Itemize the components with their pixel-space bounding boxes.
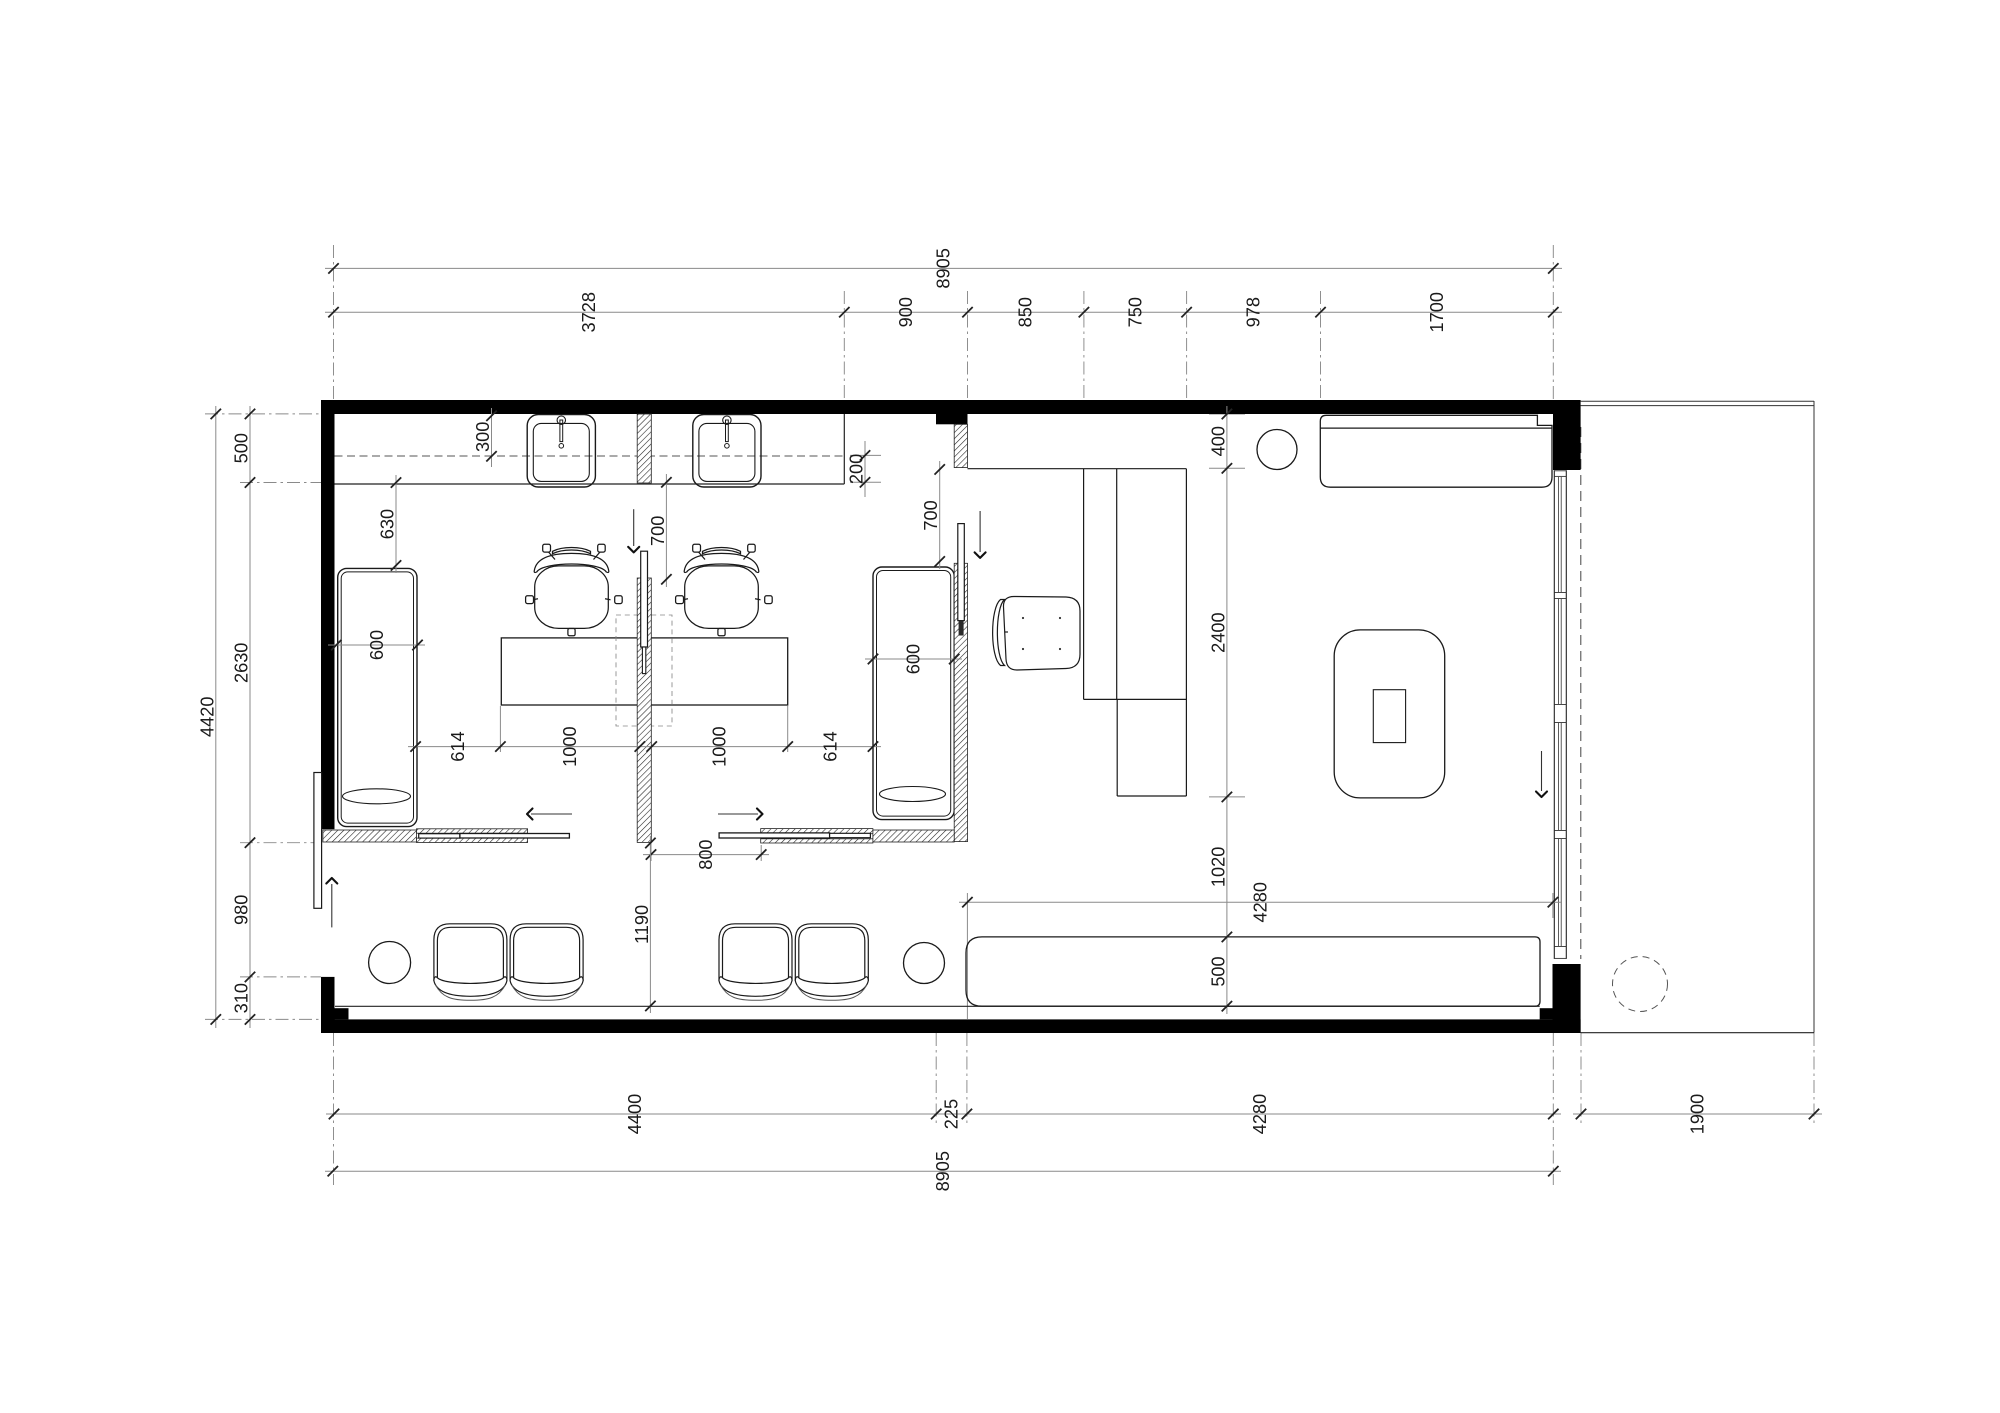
svg-text:700: 700: [648, 516, 668, 546]
svg-text:4280: 4280: [1250, 1094, 1270, 1134]
svg-text:1020: 1020: [1208, 847, 1228, 887]
svg-text:1900: 1900: [1688, 1094, 1708, 1134]
svg-text:310: 310: [232, 983, 252, 1013]
svg-text:978: 978: [1244, 297, 1264, 327]
svg-text:2400: 2400: [1208, 612, 1228, 652]
svg-text:500: 500: [232, 433, 252, 463]
svg-text:4420: 4420: [197, 696, 217, 736]
svg-text:600: 600: [367, 630, 387, 660]
svg-text:700: 700: [921, 500, 941, 530]
svg-text:1000: 1000: [710, 726, 730, 766]
svg-text:225: 225: [942, 1099, 962, 1129]
svg-text:850: 850: [1016, 297, 1036, 327]
svg-text:400: 400: [1208, 426, 1228, 456]
svg-text:500: 500: [1208, 956, 1228, 986]
svg-text:980: 980: [232, 895, 252, 925]
svg-text:614: 614: [820, 731, 840, 761]
svg-text:750: 750: [1125, 297, 1145, 327]
svg-text:630: 630: [378, 509, 398, 539]
svg-text:8905: 8905: [933, 1151, 953, 1191]
svg-text:3728: 3728: [579, 292, 599, 332]
svg-text:600: 600: [904, 644, 924, 674]
svg-text:1700: 1700: [1427, 292, 1447, 332]
svg-text:614: 614: [448, 731, 468, 761]
svg-text:2630: 2630: [232, 643, 252, 683]
svg-text:900: 900: [896, 297, 916, 327]
svg-text:8905: 8905: [934, 248, 954, 288]
svg-text:4400: 4400: [625, 1094, 645, 1134]
svg-text:200: 200: [847, 454, 867, 484]
svg-text:4280: 4280: [1250, 882, 1270, 922]
svg-text:1000: 1000: [560, 726, 580, 766]
svg-text:800: 800: [696, 839, 716, 869]
svg-text:1190: 1190: [632, 905, 652, 944]
svg-text:300: 300: [473, 422, 493, 452]
